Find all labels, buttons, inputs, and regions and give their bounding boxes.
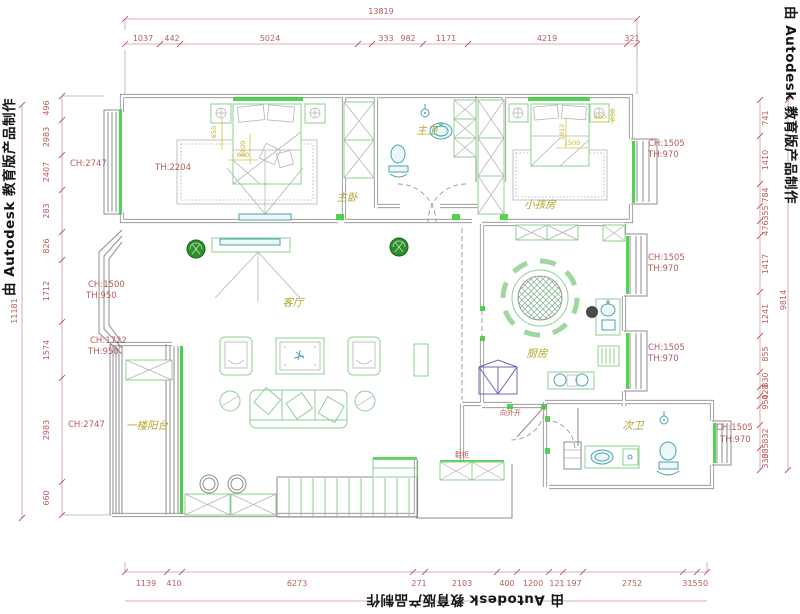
coffee-table [276, 338, 324, 374]
height-note: CH:1505 [648, 140, 685, 149]
washer-cabinet [564, 442, 581, 469]
balcony-cabinet [126, 360, 172, 380]
note-shoe-cabinet: 鞋柜 [455, 452, 469, 459]
room-label-master-bath: 主卫 [417, 126, 438, 137]
room-label-living-room: 客厅 [283, 298, 304, 309]
dim-bottom-11: 50 [698, 580, 708, 588]
pot-icon [586, 306, 598, 318]
dim-top-3: 333 [378, 35, 393, 43]
vent-appliance [598, 346, 619, 366]
dim-bottom-6: 1200 [523, 580, 543, 588]
dim-top-4: 982 [400, 35, 415, 43]
bed-dim: 600 [594, 114, 606, 121]
dim-bottom-5: 400 [499, 580, 514, 588]
note-door-swing: 向外开 [500, 410, 521, 417]
height-note: TH:950 [88, 348, 119, 357]
dim-right-11: 832 [762, 428, 770, 443]
height-note: CH:1505 [648, 344, 685, 353]
dim-top-7: 321 [624, 35, 639, 43]
stool-icon [200, 475, 218, 493]
living-room-furniture [187, 238, 408, 428]
height-note: CH:1722 [90, 337, 127, 346]
dim-left-6: 1574 [43, 340, 51, 360]
dim-left-total: 11181 [11, 298, 19, 323]
dimension-ticks [19, 16, 791, 575]
height-note: CH:1500 [88, 281, 125, 290]
dim-right-3: 355 [762, 205, 770, 220]
dim-right-10: 950 [762, 394, 770, 409]
floor-plan-canvas: 由 Autodesk 教育版产品制作 由 Autodesk 教育版产品制作 由 … [0, 0, 800, 614]
tv-console [212, 238, 290, 252]
dim-right-total: 9814 [780, 290, 788, 310]
dim-top-0: 1037 [133, 35, 153, 43]
dim-top-1: 442 [164, 35, 179, 43]
dim-top-2: 5024 [260, 35, 280, 43]
dim-left-8: 660 [43, 490, 51, 505]
room-label-kitchen: 厨房 [527, 349, 548, 360]
room-label-second-bath: 次卫 [623, 421, 644, 432]
kitchen-sink-icon [596, 299, 620, 335]
height-note: TH:970 [648, 355, 679, 364]
master-bed [177, 104, 325, 220]
bed-dim: 650 [211, 126, 218, 138]
dim-bottom-7: 121 [549, 580, 564, 588]
dim-top-6: 4219 [537, 35, 557, 43]
dim-right-6: 1241 [762, 304, 770, 324]
height-note: CH:2747 [68, 421, 105, 430]
dim-bottom-1: 410 [166, 580, 181, 588]
ceiling-light-icon [660, 411, 668, 424]
watermark-right: 由 Autodesk 教育版产品制作 [783, 6, 797, 204]
vanity-counter [585, 446, 639, 468]
fridge-icon [479, 360, 517, 394]
dim-left-5: 1712 [43, 281, 51, 301]
dim-top-total: 13819 [368, 8, 393, 16]
dim-bottom-3: 271 [411, 580, 426, 588]
floorplan-drawing [0, 0, 800, 614]
bed-dim: 650 [610, 109, 617, 121]
radiator [414, 344, 428, 376]
stove-icon [548, 372, 594, 389]
watermark-bottom: 由 Autodesk 教育版产品制作 [336, 592, 564, 606]
dim-left-2: 2407 [43, 162, 51, 182]
room-label-master-bedroom: 主卧 [337, 193, 358, 204]
toilet-icon [657, 442, 679, 475]
toilet-icon [389, 145, 408, 177]
side-table-right [355, 391, 375, 411]
height-note: CH:1505 [648, 254, 685, 263]
dim-bottom-10: 315 [682, 580, 697, 588]
room-label-ground-balcony: 一楼阳台 [126, 421, 168, 432]
shoe-cabinet [440, 462, 504, 480]
height-note: TH:2204 [155, 164, 191, 173]
armchair-right [348, 337, 380, 375]
bed-dim: 600 [237, 152, 249, 159]
ceiling-light-icon [421, 104, 429, 117]
dim-right-7: 855 [762, 346, 770, 361]
room-label-kids-room: 小孩房 [524, 200, 556, 211]
dim-right-13: 330 [762, 453, 770, 468]
plant-icon [187, 240, 205, 258]
tv-icon [220, 239, 280, 245]
height-note: CH:2747 [70, 160, 107, 169]
bottom-cabinets [185, 494, 276, 515]
bed-dim: 1912 [559, 124, 566, 141]
sofa [250, 388, 347, 428]
dining-table [503, 261, 577, 335]
dim-bottom-4: 2103 [452, 580, 472, 588]
armchair-left [220, 337, 252, 375]
dim-left-1: 2983 [43, 127, 51, 147]
dim-right-0: 741 [762, 110, 770, 125]
dim-left-3: 283 [43, 203, 51, 218]
side-table-left [220, 391, 240, 411]
dim-left-7: 2983 [43, 420, 51, 440]
height-note: TH:970 [648, 151, 679, 160]
dim-left-4: 826 [43, 238, 51, 253]
dim-right-2: 784 [762, 187, 770, 202]
dim-top-5: 1171 [436, 35, 456, 43]
plant-icon [390, 238, 408, 256]
dim-bottom-0: 1139 [136, 580, 156, 588]
height-note: TH:970 [648, 265, 679, 274]
dim-bottom-9: 2752 [622, 580, 642, 588]
height-note: CH:1505 [716, 424, 753, 433]
kitchen-furniture [479, 261, 620, 394]
dim-right-1: 1410 [762, 150, 770, 170]
dim-bottom-2: 6273 [287, 580, 307, 588]
hall-closet [344, 102, 374, 178]
height-note: TH:950 [86, 292, 117, 301]
kitchen-hanging-cabinets [516, 225, 625, 241]
second-bath-fixtures [564, 411, 679, 475]
dim-left-0: 496 [43, 100, 51, 115]
watermark-left: 由 Autodesk 教育版产品制作 [4, 98, 18, 296]
bed-dim: 1500 [564, 140, 581, 147]
bedroom-tv [239, 214, 291, 220]
stool-icon [228, 475, 246, 493]
kids-wardrobe [478, 100, 504, 214]
master-bath-fixtures [389, 104, 452, 177]
height-note: TH:970 [720, 436, 751, 445]
dim-right-5: 1417 [762, 254, 770, 274]
dim-right-4: 476 [762, 220, 770, 235]
dim-bottom-8: 197 [566, 580, 581, 588]
bath-vanity [454, 100, 476, 157]
